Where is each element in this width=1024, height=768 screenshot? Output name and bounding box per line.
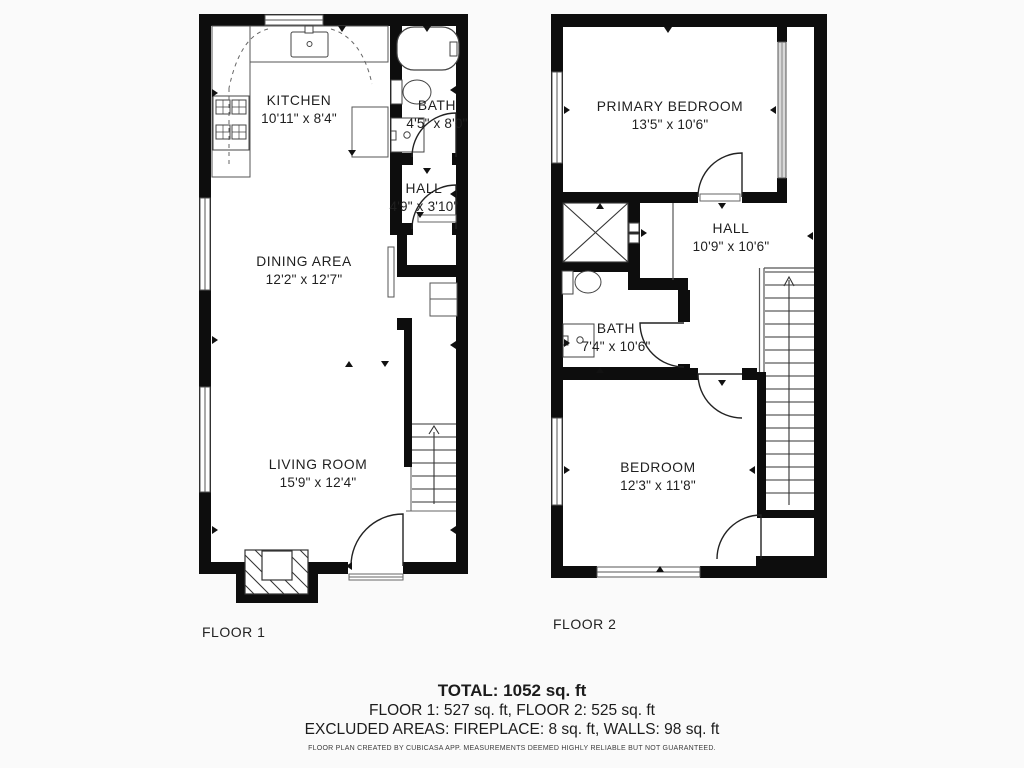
floor2-label: FLOOR 2: [553, 616, 616, 632]
bathtub: [397, 27, 459, 70]
room-dims: 10'11" x 8'4": [261, 110, 337, 128]
room-name: PRIMARY BEDROOM: [597, 98, 743, 116]
fireplace: [245, 550, 308, 594]
room-label-living: LIVING ROOM 15'9" x 12'4": [269, 456, 368, 492]
room-label-bath2: BATH 7'4" x 10'6": [582, 320, 651, 356]
room-label-hall1: HALL 4'9" x 3'10": [390, 180, 459, 216]
utility-box: [430, 283, 457, 316]
room-name: KITCHEN: [261, 92, 337, 110]
shower-door-marker: [629, 223, 639, 232]
floor-areas: FLOOR 1: 527 sq. ft, FLOOR 2: 525 sq. ft: [0, 702, 1024, 720]
room-name: BATH: [406, 97, 467, 115]
toilet: [562, 271, 601, 294]
room-label-bedroom: BEDROOM 12'3" x 11'8": [620, 459, 696, 495]
shower: [563, 203, 639, 262]
disclaimer: FLOOR PLAN CREATED BY CUBICASA APP. MEAS…: [0, 745, 1024, 752]
shower-door-marker: [629, 234, 639, 243]
room-label-bath1: BATH 4'5" x 8'0": [406, 97, 467, 133]
room-dims: 12'2" x 12'7": [256, 271, 352, 289]
room-name: HALL: [390, 180, 459, 198]
room-label-kitchen: KITCHEN 10'11" x 8'4": [261, 92, 337, 128]
total-area: TOTAL: 1052 sq. ft: [0, 681, 1024, 701]
hall-threshold: [418, 215, 456, 222]
room-label-hall2: HALL 10'9" x 10'6": [693, 220, 770, 256]
room-dims: 12'3" x 11'8": [620, 477, 696, 495]
room-name: BEDROOM: [620, 459, 696, 477]
room-dims: 7'4" x 10'6": [582, 338, 651, 356]
room-dims: 10'9" x 10'6": [693, 238, 770, 256]
partition: [388, 247, 394, 297]
room-label-dining: DINING AREA 12'2" x 12'7": [256, 253, 352, 289]
primary-threshold: [700, 194, 740, 201]
room-label-primary-bedroom: PRIMARY BEDROOM 13'5" x 10'6": [597, 98, 743, 134]
excluded-areas: EXCLUDED AREAS: FIREPLACE: 8 sq. ft, WAL…: [0, 721, 1024, 739]
room-name: DINING AREA: [256, 253, 352, 271]
room-name: BATH: [582, 320, 651, 338]
refrigerator: [352, 107, 388, 157]
room-dims: 13'5" x 10'6": [597, 116, 743, 134]
room-dims: 4'5" x 8'0": [406, 115, 467, 133]
floorplan-canvas: [0, 0, 1024, 768]
stove: [213, 96, 249, 150]
floor1-label: FLOOR 1: [202, 624, 265, 640]
room-dims: 15'9" x 12'4": [269, 474, 368, 492]
room-dims: 4'9" x 3'10": [390, 198, 459, 216]
room-name: HALL: [693, 220, 770, 238]
room-name: LIVING ROOM: [269, 456, 368, 474]
